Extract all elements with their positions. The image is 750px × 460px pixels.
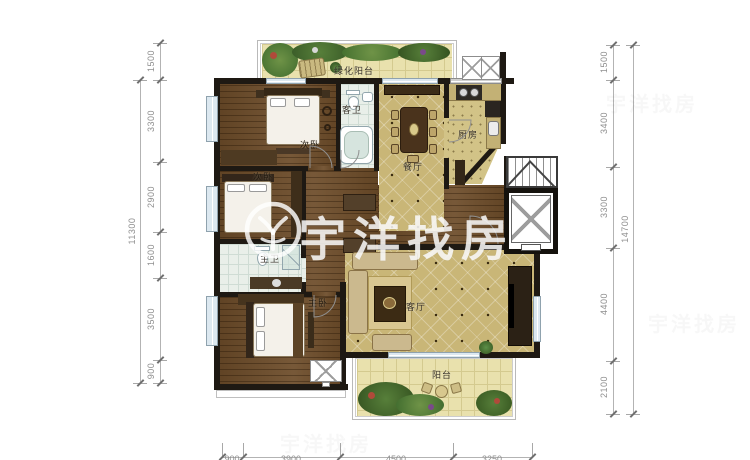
dim-right-2: 3300 [599, 185, 609, 229]
floor-decor [322, 106, 332, 116]
dim-left-1: 3300 [146, 99, 156, 143]
flower [494, 398, 500, 404]
plants [396, 394, 444, 416]
dim-right-total: 14700 [620, 207, 630, 251]
lounge-chair [298, 57, 326, 78]
dim-chain-left-inner [160, 43, 161, 383]
tv [509, 284, 514, 328]
flower [270, 52, 277, 59]
window-living-right [533, 296, 541, 342]
plant [479, 341, 493, 354]
watermark-text: 宇洋找房 [299, 201, 515, 270]
bed-runner [293, 303, 303, 357]
toilet-tank [346, 90, 360, 95]
pillow [294, 98, 310, 107]
flower [428, 404, 434, 410]
dim-left-3: 1600 [146, 233, 156, 277]
dim-right-0: 1500 [599, 40, 609, 84]
pillow [256, 307, 265, 327]
flower [368, 392, 375, 399]
flower [312, 47, 318, 53]
room-label-bedroom-mid: 次卧 [253, 170, 273, 183]
bistro-table [435, 385, 448, 398]
bed-bench [308, 312, 314, 348]
dim-left-5: 900 [146, 349, 156, 393]
sink [488, 121, 499, 136]
sofa [348, 270, 368, 334]
ac-platform-bottom [310, 360, 342, 382]
floor-decor [324, 124, 331, 131]
bathtub-inner [344, 131, 369, 159]
door-gap-bedroom-top [308, 166, 334, 171]
chair [429, 144, 437, 154]
chair [391, 127, 399, 137]
chair [391, 110, 399, 120]
chair [429, 110, 437, 120]
chair [391, 144, 399, 154]
armchair [372, 334, 412, 351]
dim-right-4: 2100 [599, 365, 609, 409]
bay-window-master [206, 296, 218, 346]
bay-window-bedroom-mid [206, 186, 218, 232]
plants [342, 44, 402, 61]
room-label-guest-bath: 客卫 [342, 103, 362, 116]
room-label-living: 客厅 [406, 300, 426, 313]
table-decor [383, 297, 396, 309]
elevator-cross [511, 195, 551, 243]
chair [429, 127, 437, 137]
wardrobe [221, 150, 277, 165]
dim-bottom-3: 3250 [477, 454, 507, 460]
ac-platform-bottom-vent [322, 382, 330, 387]
nightstand [256, 90, 264, 98]
pillow [256, 331, 265, 351]
room-label-balcony: 阳台 [432, 368, 452, 381]
basin [362, 92, 373, 102]
dim-left-total: 11300 [127, 209, 137, 253]
ac-platform-top-a [462, 56, 482, 80]
ghost-watermark: 宇洋找房 [606, 88, 698, 117]
vanity-basin [272, 279, 281, 287]
bay-window-bedroom-top [206, 96, 218, 142]
ledge-bottom [216, 390, 346, 398]
room-label-master-bedroom: 主卧 [308, 296, 328, 309]
dim-left-0: 1500 [146, 39, 156, 83]
slider-green-balcony-right [382, 78, 438, 84]
elevator-door [521, 244, 541, 251]
burner [470, 88, 479, 97]
flower [420, 49, 426, 55]
door-gap-kitchen [444, 118, 449, 158]
ghost-watermark: 宇洋找房 [648, 308, 740, 337]
floorplan-canvas: 绿化阳台 次卧 客卫 餐厅 厨房 次卧 主卫 主卧 客厅 阳台 1500 330… [0, 0, 750, 460]
pillow [249, 184, 267, 192]
ac-platform-top-b [481, 56, 500, 80]
nightstand [322, 90, 330, 98]
pillow [270, 98, 286, 107]
burner [459, 88, 468, 97]
pillow [227, 184, 245, 192]
dim-bottom-2: 4500 [381, 454, 411, 460]
dim-right-3: 4400 [599, 282, 609, 326]
wall-guestbath-right [374, 82, 379, 171]
watermark-logo-icon [240, 197, 306, 263]
dim-chain-left-outer [140, 80, 141, 383]
entry-cabinet [455, 160, 465, 185]
slider-balcony [388, 352, 480, 358]
room-label-dining: 餐厅 [403, 160, 423, 173]
fridge [485, 101, 500, 117]
dim-left-2: 2900 [146, 175, 156, 219]
room-label-bedroom-top: 次卧 [300, 138, 320, 151]
slider-green-balcony-left [266, 78, 306, 84]
dim-bottom-0: 900 [217, 454, 247, 460]
ghost-watermark: 宇洋找房 [280, 428, 372, 457]
room-label-green-balcony: 绿化阳台 [334, 64, 374, 77]
room-label-kitchen: 厨房 [458, 128, 478, 141]
table-centerpiece [409, 123, 419, 136]
dim-left-4: 3500 [146, 297, 156, 341]
sideboard [384, 85, 440, 95]
